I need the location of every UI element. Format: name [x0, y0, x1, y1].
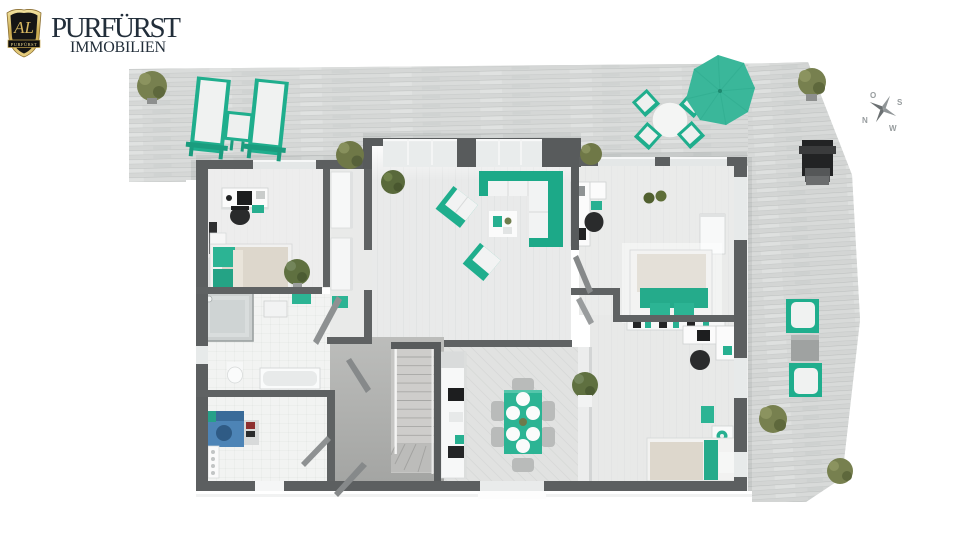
svg-text:S: S: [897, 98, 903, 107]
svg-text:W: W: [889, 124, 897, 133]
svg-text:AL: AL: [13, 18, 34, 37]
svg-text:IMMOBILIEN: IMMOBILIEN: [70, 39, 166, 56]
svg-text:N: N: [862, 116, 868, 125]
svg-text:O: O: [870, 91, 876, 100]
svg-text:PURFÜRST: PURFÜRST: [11, 42, 37, 47]
